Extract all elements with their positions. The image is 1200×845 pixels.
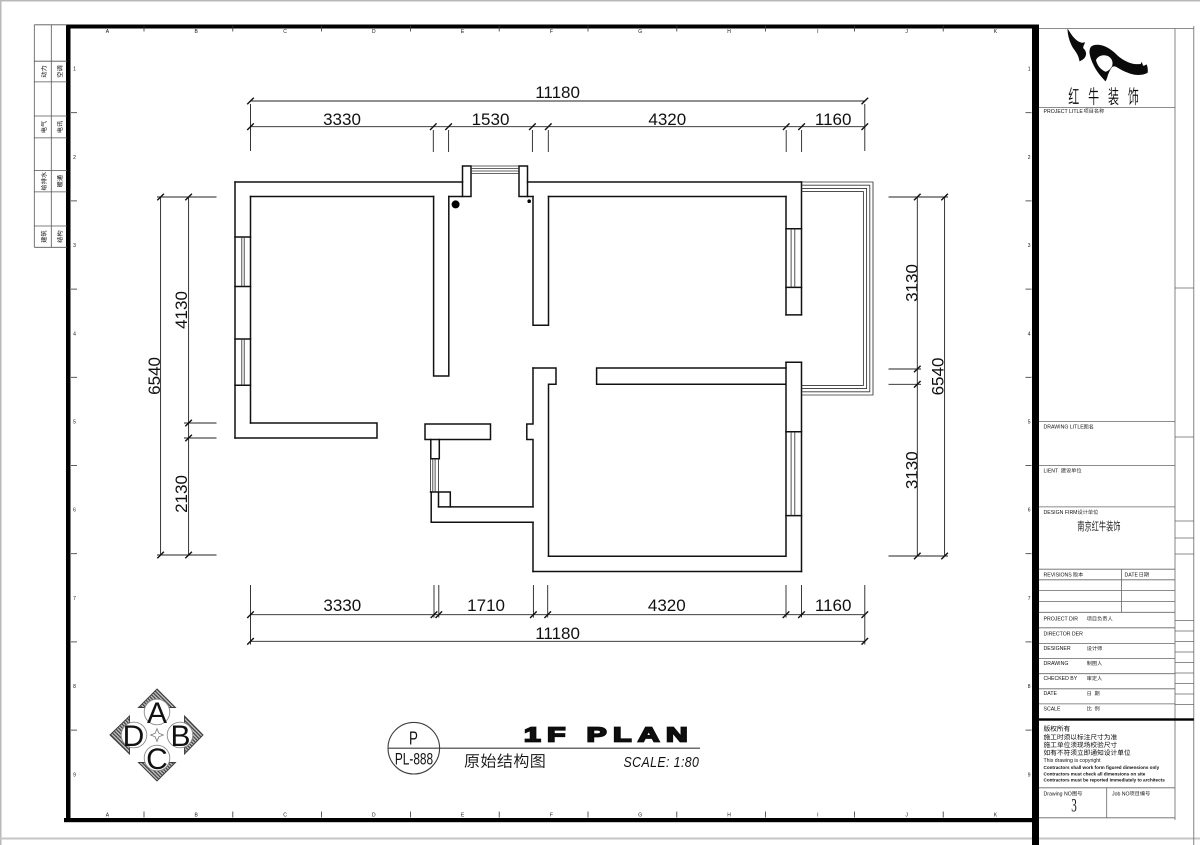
svg-text:1: 1 [73, 67, 76, 73]
svg-text:2130: 2130 [172, 475, 191, 513]
svg-text:4: 4 [73, 331, 76, 337]
svg-text:LIENT: LIENT [1044, 468, 1060, 474]
svg-text:PROJECT LITLE: PROJECT LITLE [1044, 109, 1084, 115]
svg-text:G: G [638, 29, 642, 35]
svg-text:2: 2 [1028, 155, 1031, 161]
svg-text:6540: 6540 [929, 358, 948, 396]
svg-text:3: 3 [73, 243, 76, 249]
svg-text:3130: 3130 [903, 264, 922, 302]
svg-text:Drawing NO: Drawing NO [1044, 791, 1072, 797]
svg-text:F: F [550, 813, 553, 819]
svg-text:H: H [727, 813, 731, 819]
svg-text:4320: 4320 [648, 596, 686, 615]
svg-text:4130: 4130 [172, 291, 191, 329]
svg-text:SCALE: 1:80: SCALE: 1:80 [624, 754, 700, 770]
svg-text:DIRECTOR DER: DIRECTOR DER [1044, 632, 1084, 638]
svg-text:REVISIONS: REVISIONS [1044, 572, 1073, 578]
svg-text:3: 3 [1071, 796, 1077, 817]
svg-text:6540: 6540 [145, 357, 164, 395]
svg-text:This drawing is copyright: This drawing is copyright [1044, 758, 1102, 764]
svg-text:8: 8 [73, 684, 76, 690]
svg-text:H: H [727, 29, 731, 35]
svg-text:DESIGN FIRM: DESIGN FIRM [1044, 510, 1078, 516]
svg-text:D: D [123, 720, 145, 753]
svg-text:G: G [638, 813, 642, 819]
svg-text:Contractors must be reported I: Contractors must be reported Immediately… [1044, 778, 1166, 783]
svg-text:Contractors must check all dim: Contractors must check all dimensions on… [1044, 772, 1146, 777]
svg-text:4320: 4320 [648, 110, 686, 129]
svg-text:3130: 3130 [903, 451, 922, 489]
svg-text:DATE: DATE [1125, 572, 1139, 578]
svg-text:11180: 11180 [535, 624, 580, 643]
svg-text:PROJECT DIR: PROJECT DIR [1044, 617, 1079, 623]
svg-text:7: 7 [73, 596, 76, 602]
svg-text:6: 6 [73, 508, 76, 514]
svg-text:I: I [817, 813, 818, 819]
svg-text:C: C [146, 743, 168, 776]
svg-text:D: D [372, 29, 376, 35]
svg-text:1530: 1530 [472, 110, 510, 129]
svg-text:D: D [372, 813, 376, 819]
svg-text:7: 7 [1028, 596, 1031, 602]
svg-text:CHECKED BY: CHECKED BY [1044, 676, 1078, 682]
svg-text:C: C [283, 29, 287, 35]
svg-text:I: I [817, 29, 818, 35]
svg-text:1160: 1160 [815, 596, 852, 615]
svg-text:3330: 3330 [323, 596, 361, 615]
svg-text:11180: 11180 [535, 83, 580, 102]
svg-text:6: 6 [1028, 508, 1031, 514]
svg-text:C: C [283, 813, 287, 819]
svg-text:8: 8 [1028, 684, 1031, 690]
svg-text:1710: 1710 [467, 596, 505, 615]
svg-text:1: 1 [1028, 67, 1031, 73]
svg-text:PL-888: PL-888 [395, 751, 433, 769]
svg-text:5: 5 [73, 420, 76, 426]
svg-text:9: 9 [1028, 772, 1031, 778]
svg-text:DATE: DATE [1044, 691, 1058, 697]
svg-text:4: 4 [1028, 331, 1031, 337]
svg-text:2: 2 [73, 155, 76, 161]
svg-text:DRAWING LITLE: DRAWING LITLE [1044, 425, 1085, 431]
svg-text:Job NO: Job NO [1112, 791, 1130, 797]
svg-text:5: 5 [1028, 420, 1031, 426]
svg-text:F: F [550, 29, 553, 35]
svg-text:B: B [170, 720, 190, 753]
svg-text:9: 9 [73, 772, 76, 778]
svg-text:3: 3 [1028, 243, 1031, 249]
svg-text:1160: 1160 [815, 110, 852, 129]
svg-text:DESIGNER: DESIGNER [1044, 646, 1071, 652]
svg-text:SCALE: SCALE [1044, 706, 1062, 712]
svg-text:DRAWING: DRAWING [1044, 661, 1069, 667]
svg-text:Contractors shall work form fi: Contractors shall work form figured dime… [1044, 765, 1160, 770]
svg-text:A: A [147, 697, 167, 730]
svg-text:P: P [409, 728, 418, 749]
svg-text:3330: 3330 [323, 110, 361, 129]
svg-text:1F PLAN: 1F PLAN [524, 724, 694, 746]
